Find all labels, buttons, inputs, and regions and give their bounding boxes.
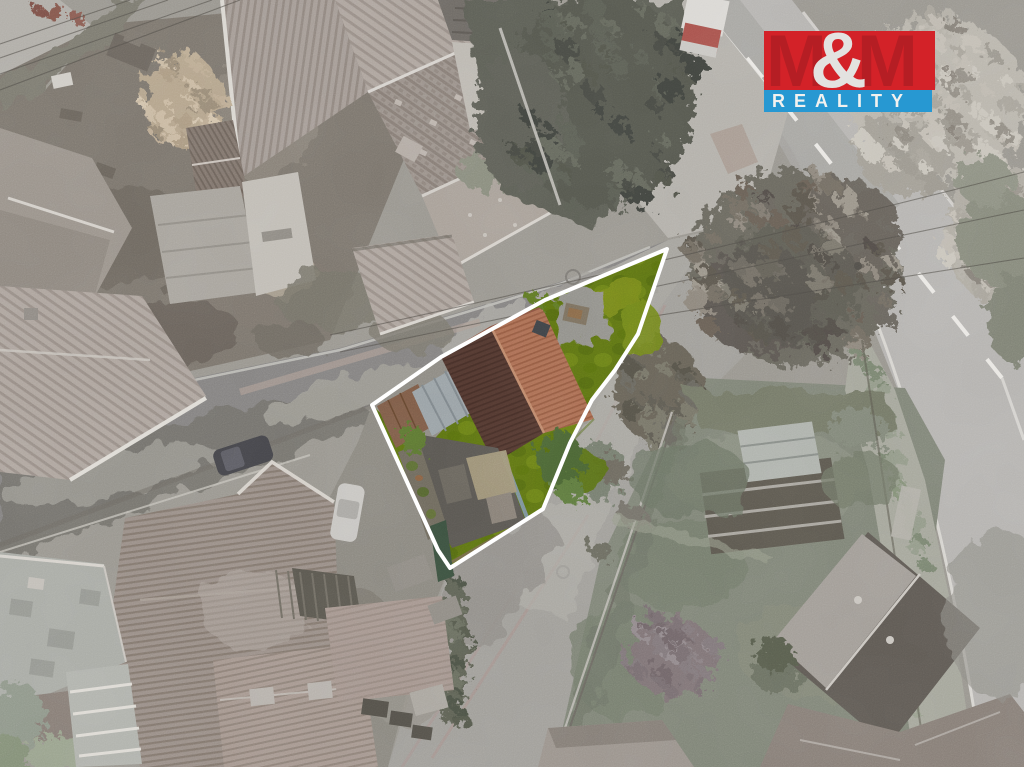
svg-text:REALITY: REALITY	[772, 91, 912, 111]
